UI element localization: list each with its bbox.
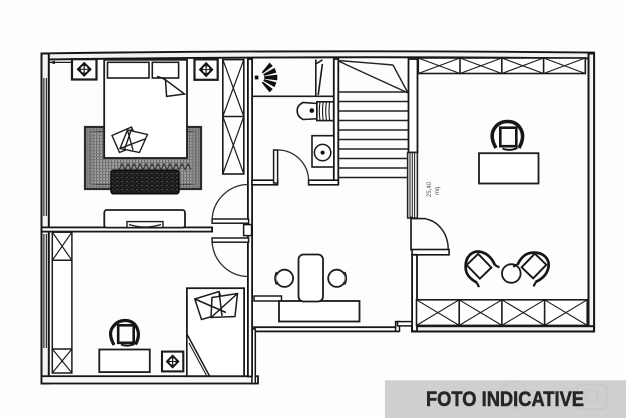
- svg-text:mq: mq: [435, 187, 441, 195]
- svg-text:FOTO INDICATIVE: FOTO INDICATIVE: [426, 387, 584, 411]
- svg-text:25,40: 25,40: [427, 181, 433, 197]
